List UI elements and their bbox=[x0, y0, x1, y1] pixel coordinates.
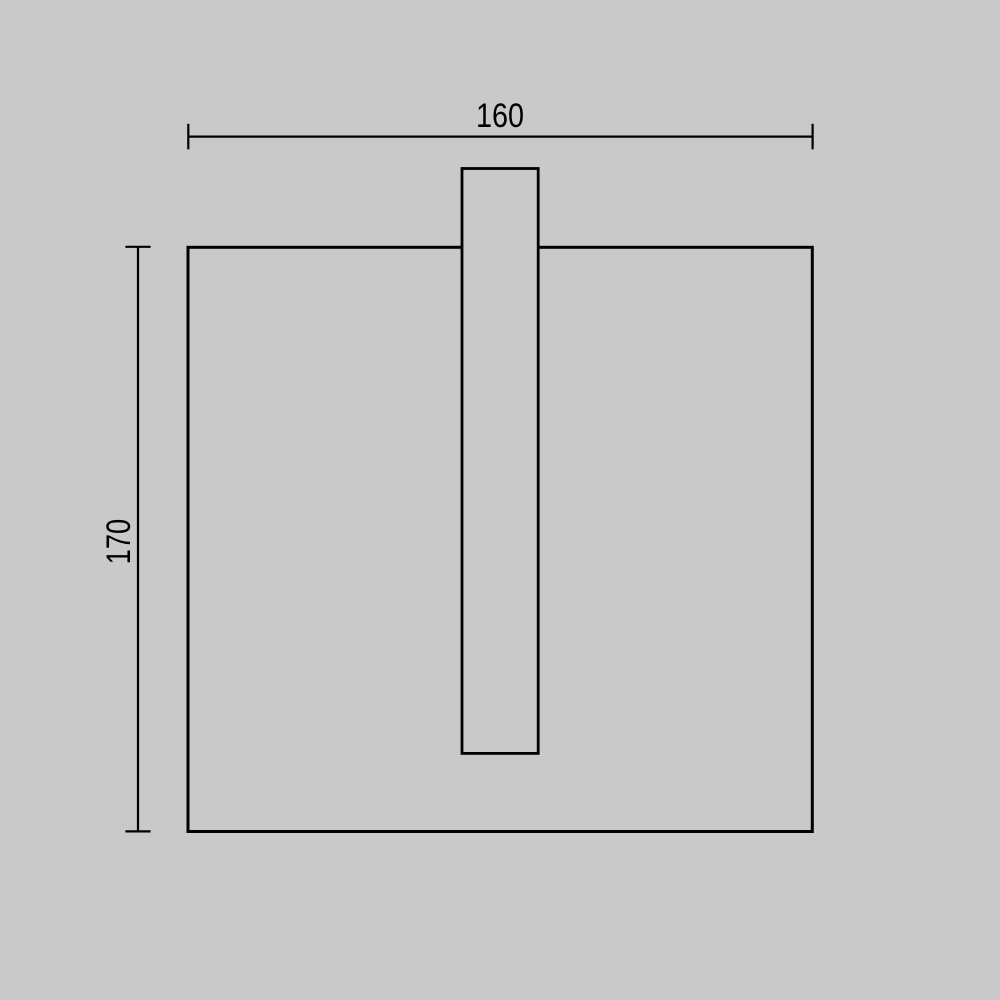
svg-text:170: 170 bbox=[100, 519, 138, 565]
svg-text:160: 160 bbox=[476, 97, 524, 135]
